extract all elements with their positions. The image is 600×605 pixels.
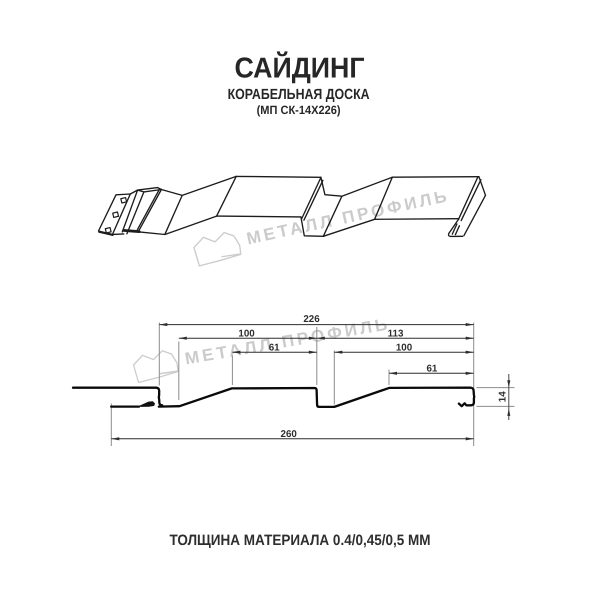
svg-text:226: 226 <box>303 314 320 325</box>
svg-text:КОРАБЕЛЬНАЯ ДОСКА: КОРАБЕЛЬНАЯ ДОСКА <box>228 87 370 103</box>
svg-text:260: 260 <box>281 429 298 440</box>
svg-text:100: 100 <box>396 342 413 353</box>
svg-text:61: 61 <box>426 364 437 375</box>
svg-text:100: 100 <box>238 328 255 339</box>
svg-text:113: 113 <box>388 328 404 339</box>
svg-text:САЙДИНГ: САЙДИНГ <box>235 50 365 84</box>
svg-text:14: 14 <box>497 391 508 402</box>
svg-text:61: 61 <box>269 342 280 353</box>
svg-text:(МП СК-14Х226): (МП СК-14Х226) <box>257 103 341 117</box>
svg-text:ТОЛЩИНА МАТЕРИАЛА 0.4/0,45/0,5: ТОЛЩИНА МАТЕРИАЛА 0.4/0,45/0,5 ММ <box>170 532 431 549</box>
